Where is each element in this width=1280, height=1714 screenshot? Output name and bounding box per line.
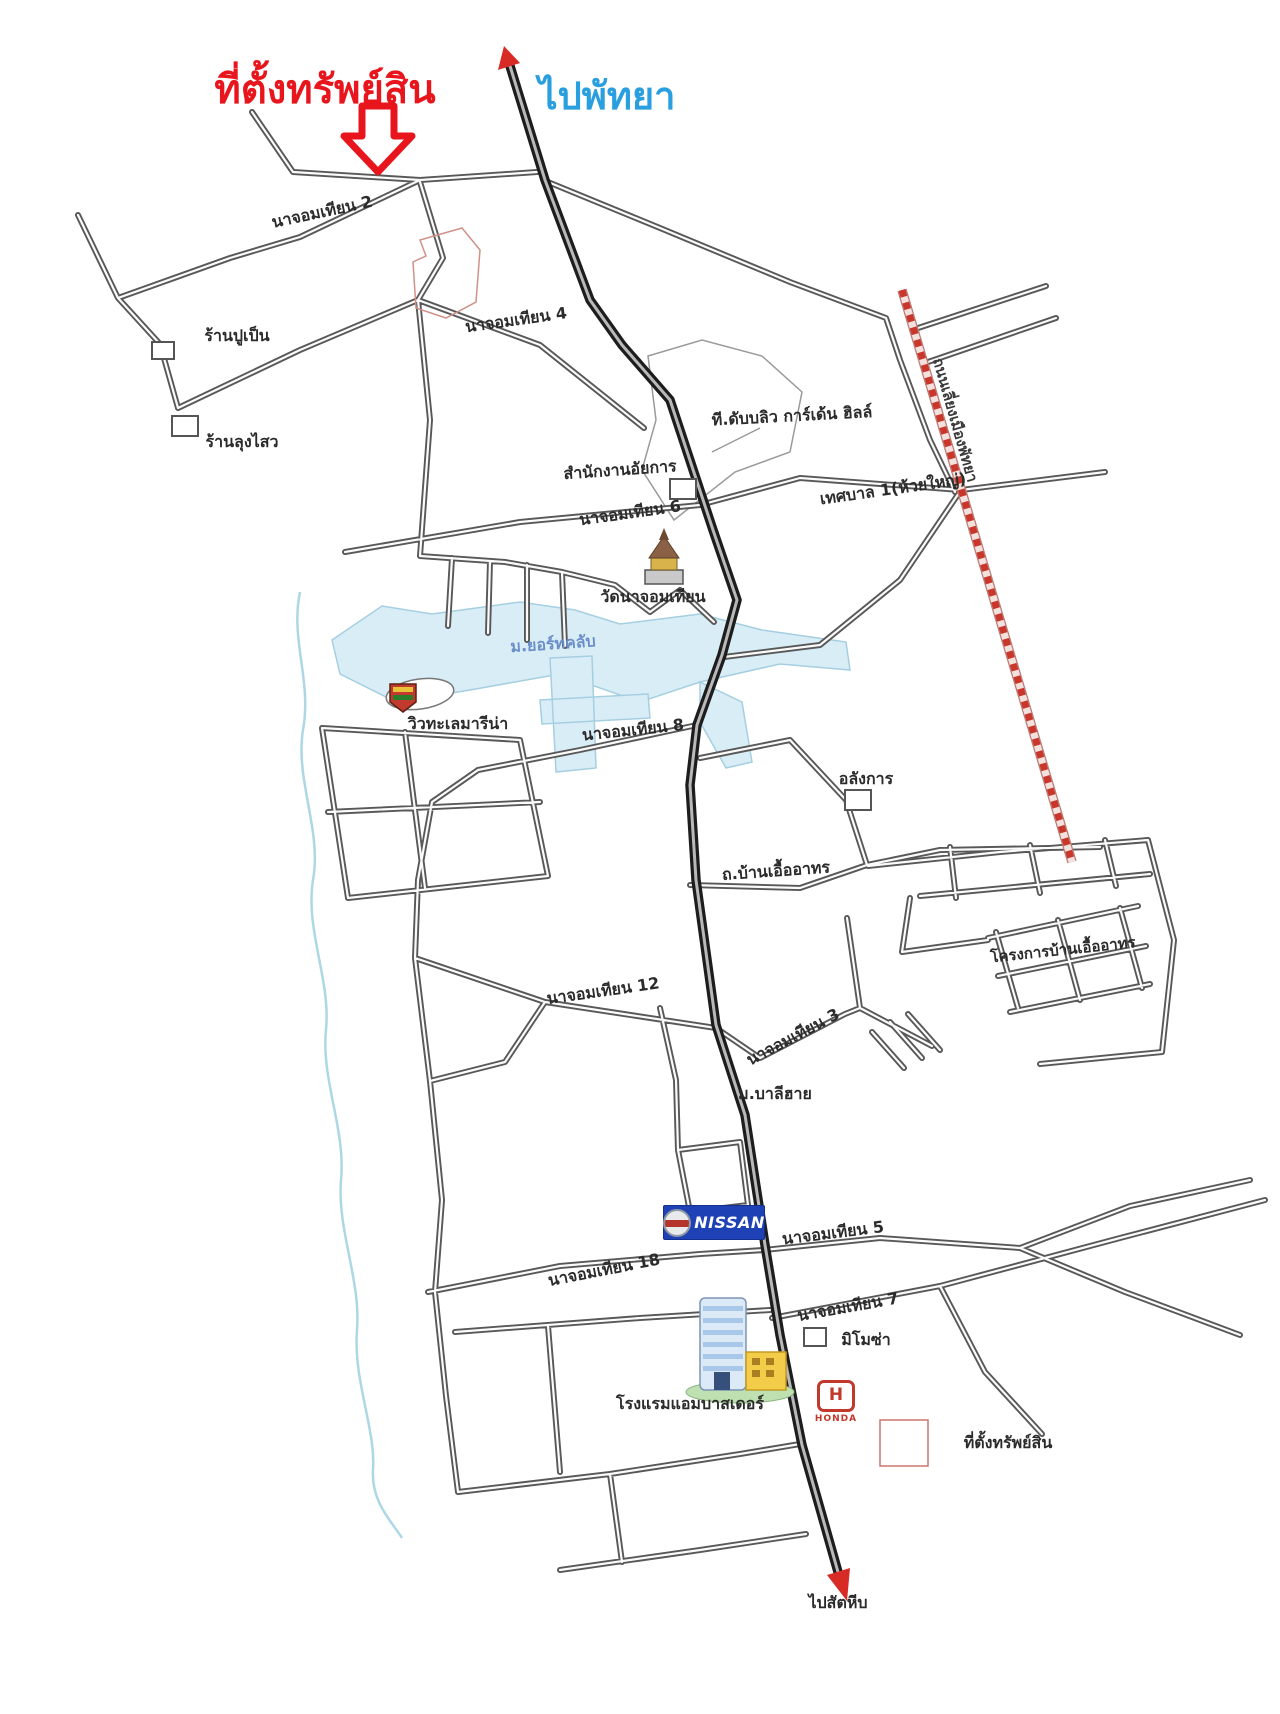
property-location-title: ที่ตั้งทรัพย์สิน bbox=[214, 68, 435, 112]
mimosa-marker bbox=[804, 1328, 826, 1346]
honda-badge: H HONDA bbox=[814, 1380, 858, 1424]
place-label-ran-lung-sawai: ร้านลุงไสว bbox=[206, 433, 279, 451]
place-label-alangkarn: อลังการ bbox=[839, 770, 894, 788]
place-label-view-talay-marina: วิวทะเลมารีน่า bbox=[408, 715, 508, 733]
map-canvas: ที่ตั้งทรัพย์สิน ไปพัทยา นาจอมเทียน 2 นา… bbox=[0, 0, 1280, 1714]
temple-icon bbox=[645, 528, 683, 584]
place-label-ran-pu-pen: ร้านปูเป็น bbox=[204, 327, 269, 345]
property-hatch-area bbox=[413, 228, 480, 318]
railway-line bbox=[902, 290, 1072, 862]
to-sattahip-label: ไปสัตหีบ bbox=[808, 1594, 867, 1612]
honda-logo-text: HONDA bbox=[814, 1414, 858, 1424]
ran-lung-sawai-marker bbox=[172, 416, 198, 436]
place-label-mimosa: มิโมซ่า bbox=[841, 1331, 891, 1349]
legend-label: ที่ตั้งทรัพย์สิน bbox=[964, 1434, 1053, 1452]
ran-pu-pen-marker bbox=[152, 342, 174, 359]
honda-h-icon: H bbox=[817, 1380, 855, 1412]
nissan-logo-icon bbox=[663, 1209, 691, 1237]
place-label-wat-najomtien: วัดนาจอมเทียน bbox=[600, 588, 705, 606]
to-pattaya-label: ไปพัทยา bbox=[539, 76, 676, 118]
place-label-balihai: ม.บาลีฮาย bbox=[738, 1085, 812, 1103]
legend-swatch bbox=[880, 1420, 928, 1466]
alangkarn-marker bbox=[845, 790, 871, 810]
nissan-logo-text: NISSAN bbox=[694, 1213, 765, 1232]
garden-hill-area bbox=[642, 340, 802, 520]
place-label-ambassador-hotel: โรงแรมแอมบาสเดอร์ bbox=[616, 1395, 764, 1413]
road-network bbox=[0, 0, 1280, 1714]
arrow-north-icon bbox=[498, 46, 520, 70]
nissan-badge: NISSAN bbox=[663, 1205, 765, 1240]
